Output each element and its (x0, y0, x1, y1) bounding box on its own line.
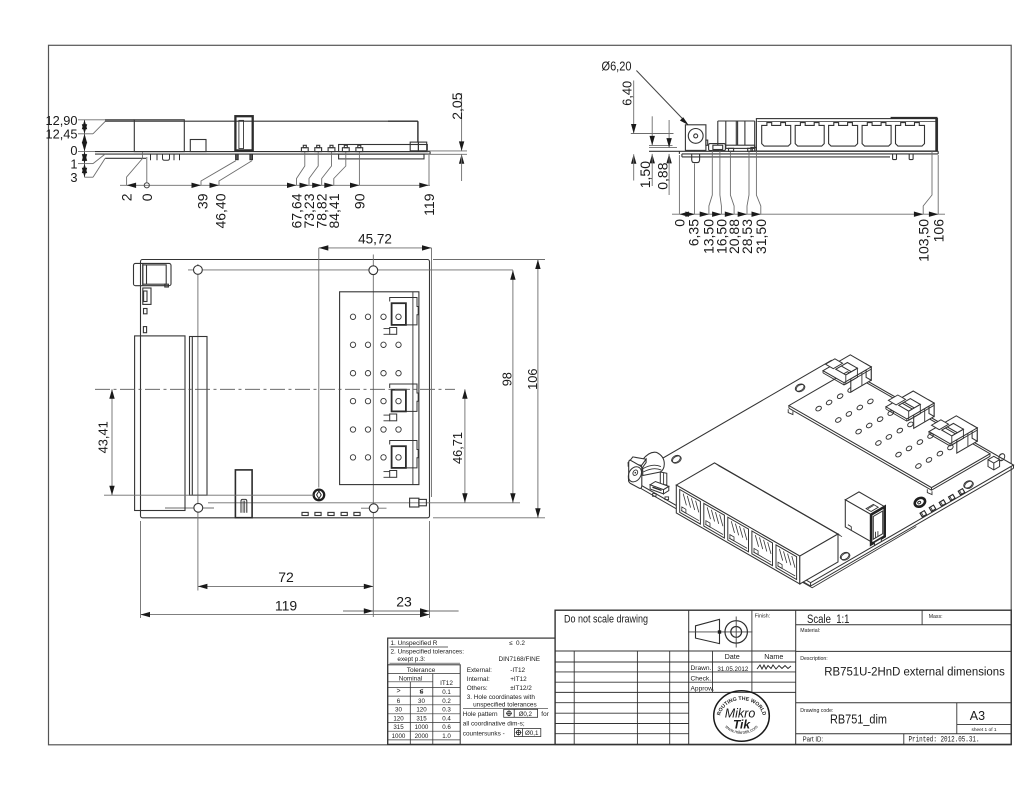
svg-text:103,50: 103,50 (915, 219, 931, 262)
svg-text:-IT12: -IT12 (510, 667, 525, 674)
svg-text:Scale 1:1: Scale 1:1 (807, 614, 850, 626)
svg-text:315: 315 (393, 724, 404, 731)
svg-text:1. Unspecified R: 1. Unspecified R (391, 640, 438, 647)
svg-text:30: 30 (418, 698, 425, 705)
svg-text:2: 2 (119, 193, 135, 201)
svg-text:Tik: Tik (733, 718, 751, 732)
svg-text:98: 98 (500, 372, 515, 386)
svg-text:0.2: 0.2 (442, 698, 451, 705)
svg-text:43,41: 43,41 (96, 421, 111, 453)
svg-text:Printed: 2012.05.31.: Printed: 2012.05.31. (909, 735, 980, 745)
svg-text:Drawing code:: Drawing code: (800, 708, 833, 714)
svg-text:1000: 1000 (415, 724, 429, 731)
svg-text:sheet 1 of 1: sheet 1 of 1 (971, 727, 996, 733)
svg-text:90: 90 (351, 193, 367, 209)
svg-text:72: 72 (278, 569, 294, 585)
svg-text:unspecified tolerances: unspecified tolerances (473, 702, 537, 709)
svg-text:RB751U-2HnD external dimension: RB751U-2HnD external dimensions (824, 664, 1005, 678)
svg-text:2000: 2000 (415, 733, 429, 740)
svg-text:Approw.: Approw. (691, 686, 715, 693)
svg-text:External:: External: (467, 667, 492, 674)
svg-text:1,50: 1,50 (637, 161, 653, 188)
svg-text:Ø0,2: Ø0,2 (519, 711, 533, 718)
svg-text:6,40: 6,40 (620, 81, 635, 106)
svg-text:Others:: Others: (467, 685, 488, 692)
svg-text:RB751_dim: RB751_dim (830, 711, 887, 726)
svg-text:Finish:: Finish: (755, 614, 770, 620)
svg-text:1.0: 1.0 (442, 733, 451, 740)
svg-text:Mass:: Mass: (929, 614, 943, 620)
svg-text:106: 106 (525, 369, 540, 390)
svg-text:119: 119 (275, 598, 298, 614)
svg-text:46,40: 46,40 (212, 193, 228, 228)
svg-text:IT12: IT12 (440, 680, 453, 687)
svg-text:0,88: 0,88 (655, 162, 671, 189)
svg-text:±IT12/2: ±IT12/2 (510, 685, 532, 692)
svg-text:all coordinative dim-s;: all coordinative dim-s; (463, 721, 525, 728)
svg-text:0: 0 (139, 193, 155, 201)
svg-text:A3: A3 (970, 709, 985, 723)
svg-text:3. Hole coordinates with: 3. Hole coordinates with (467, 694, 536, 701)
svg-text:Ø0,1: Ø0,1 (525, 730, 539, 737)
svg-text:119: 119 (421, 193, 437, 216)
svg-text:45,72: 45,72 (358, 232, 392, 247)
svg-text:>: > (396, 688, 400, 695)
svg-text:Material:: Material: (800, 628, 820, 634)
svg-text:31.05.2012: 31.05.2012 (717, 666, 749, 673)
svg-text:106: 106 (930, 219, 946, 243)
svg-text:Check.: Check. (691, 676, 712, 683)
svg-text:Date: Date (725, 652, 740, 661)
svg-text:Nominal: Nominal (399, 675, 422, 682)
svg-text:Description:: Description: (800, 656, 827, 662)
svg-text:30: 30 (395, 707, 402, 714)
svg-text:0.4: 0.4 (442, 716, 451, 723)
svg-text:Part ID:: Part ID: (803, 734, 824, 743)
svg-text:Ø6,20: Ø6,20 (602, 59, 632, 74)
svg-text:39: 39 (195, 193, 211, 209)
svg-text:1000: 1000 (392, 733, 406, 740)
svg-text:120: 120 (416, 707, 427, 714)
svg-text:Do not scale drawing: Do not scale drawing (564, 613, 648, 625)
svg-text:Hole pattern: Hole pattern (463, 711, 498, 718)
svg-text:23: 23 (396, 594, 412, 610)
svg-text:2,05: 2,05 (449, 92, 465, 119)
svg-text:0.6: 0.6 (442, 724, 451, 731)
svg-text:for: for (541, 711, 549, 718)
svg-text:2. Unspecified tolerances:: 2. Unspecified tolerances: (391, 649, 465, 656)
svg-text:6,35: 6,35 (685, 219, 701, 246)
svg-text:6: 6 (397, 698, 401, 705)
svg-text:31,50: 31,50 (753, 219, 769, 254)
svg-text:DIN7168/FINE: DIN7168/FINE (499, 656, 541, 663)
svg-text:Drawn.: Drawn. (691, 665, 712, 672)
svg-text:120: 120 (393, 716, 404, 723)
svg-text:Internal:: Internal: (467, 676, 490, 683)
svg-text:0.1: 0.1 (442, 689, 451, 696)
svg-text:+IT12: +IT12 (510, 676, 527, 683)
svg-text:countersunks -: countersunks - (463, 730, 505, 737)
svg-text:0.3: 0.3 (442, 707, 451, 714)
svg-text:46,71: 46,71 (450, 432, 465, 464)
svg-text:6: 6 (420, 689, 424, 696)
svg-text:3: 3 (70, 170, 77, 185)
svg-text:Name: Name (764, 652, 783, 661)
svg-text:Tolerance: Tolerance (407, 667, 436, 674)
svg-text:exept p.3:: exept p.3: (397, 656, 425, 663)
svg-text:12,45: 12,45 (45, 127, 77, 142)
svg-text:84,41: 84,41 (326, 193, 342, 228)
svg-text:≤ 0.2: ≤ 0.2 (509, 640, 525, 647)
svg-text:315: 315 (416, 716, 427, 723)
